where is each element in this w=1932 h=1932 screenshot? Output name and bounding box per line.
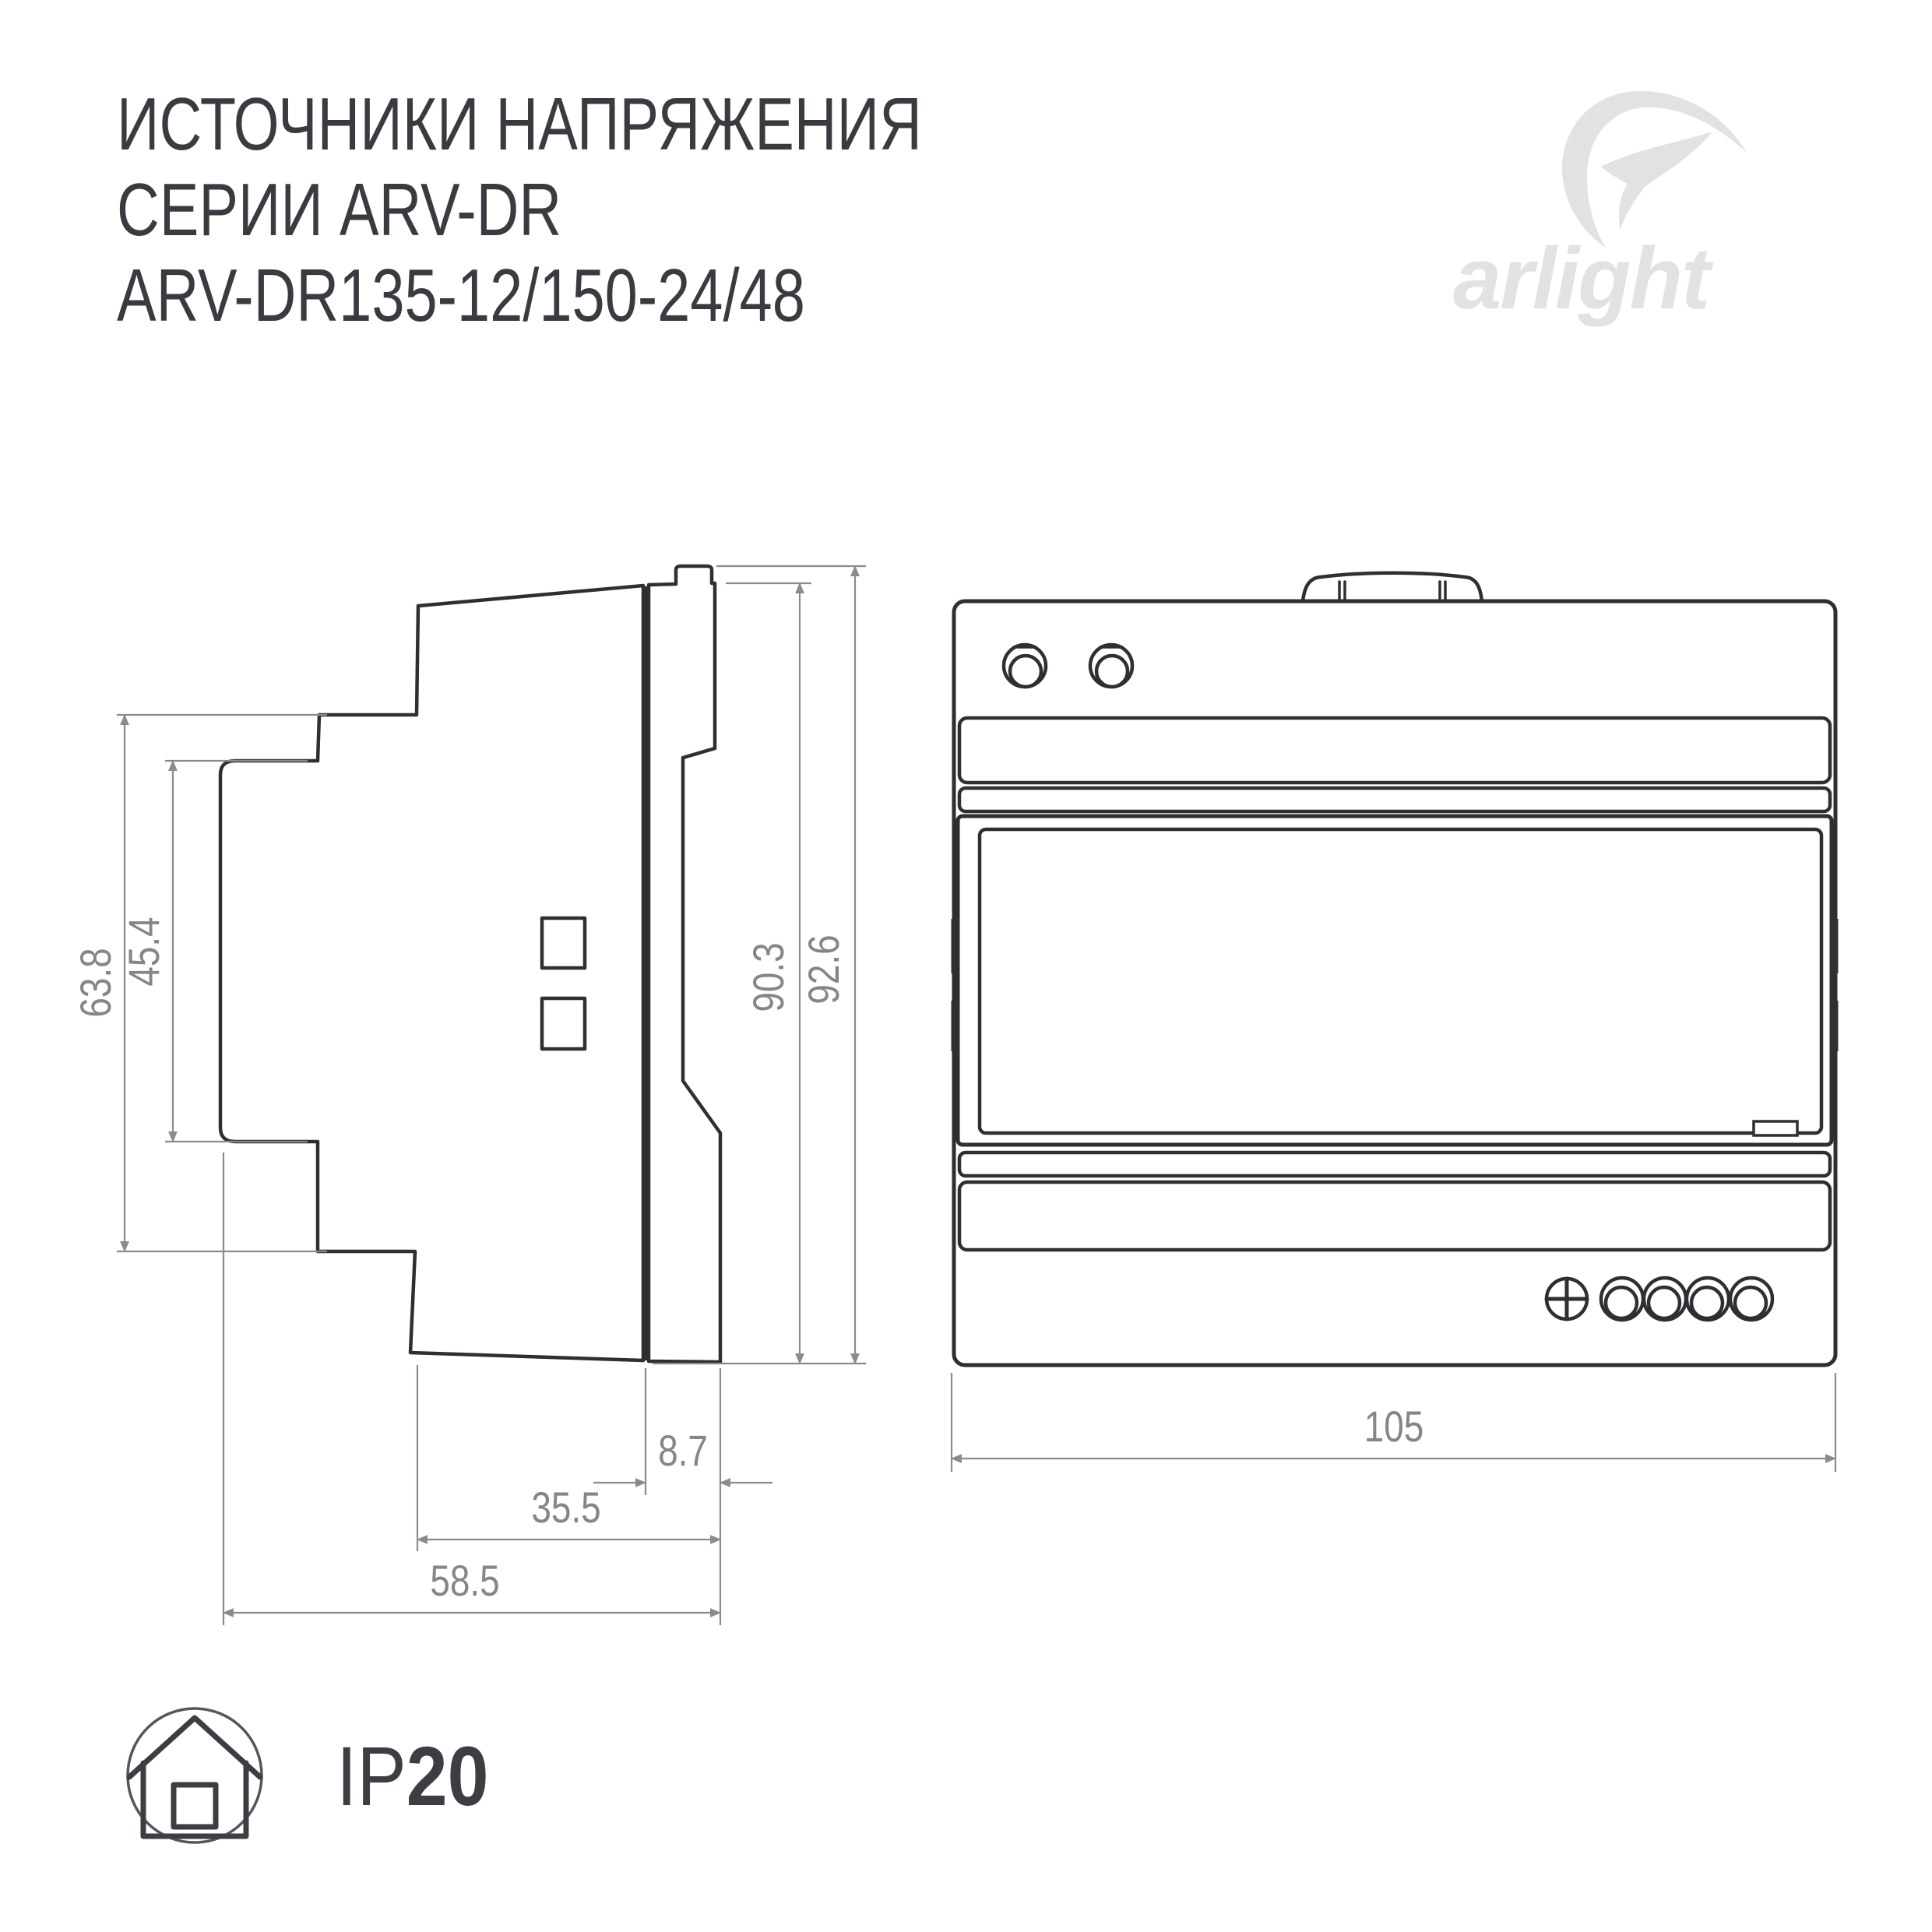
side-view-drawing: 63.8 45.4 90.3 92.6 8.7 [72, 566, 866, 1625]
page-title-line2: СЕРИИ ARV-DR [117, 169, 561, 252]
dim-body-height-value: 90.3 [744, 942, 793, 1012]
technical-drawing-canvas: ИСТОЧНИКИ НАПРЯЖЕНИЯ СЕРИИ ARV-DR ARV-DR… [0, 0, 1932, 1932]
front-lower-strip [959, 1153, 1830, 1176]
dim-rail-depth-value: 8.7 [658, 1427, 708, 1475]
arlight-swoosh-icon [1601, 132, 1712, 230]
front-panel-inner [980, 829, 1821, 1133]
ip-prefix: IP [336, 1729, 406, 1823]
page-title-line3: ARV-DR135-12/150-24/48 [117, 255, 805, 338]
badge-circle [128, 1709, 262, 1842]
front-view-drawing: 105 [952, 573, 1835, 1472]
dim-mid-depth-value: 35.5 [531, 1483, 600, 1532]
side-window-upper [542, 918, 585, 968]
front-upper-band [959, 718, 1830, 783]
front-knob-right [1090, 645, 1132, 687]
front-knob-left [1004, 645, 1046, 687]
title-block: ИСТОЧНИКИ НАПРЯЖЕНИЯ СЕРИИ ARV-DR ARV-DR… [117, 83, 922, 338]
ip-rating-label: IP20 [336, 1729, 489, 1823]
dim-inner-height-value: 45.4 [120, 917, 168, 986]
dim-outer-height-value: 63.8 [72, 948, 120, 1017]
dim-front-width: 105 [952, 1373, 1835, 1472]
side-window-lower [542, 998, 585, 1049]
dim-total-depth-value: 58.5 [430, 1557, 499, 1605]
house-icon [129, 1718, 260, 1836]
front-ground-screw [1547, 1279, 1587, 1319]
front-upper-strip [959, 788, 1830, 811]
front-lower-band [959, 1182, 1830, 1250]
front-panel-tag [1754, 1121, 1797, 1135]
side-body-outline [220, 586, 643, 1360]
ip-rating-badge: IP20 [128, 1709, 489, 1842]
page: ИСТОЧНИКИ НАПРЯЖЕНИЯ СЕРИИ ARV-DR ARV-DR… [0, 0, 1932, 1932]
brand-logo: arlight [1453, 91, 1747, 327]
ip-value: 20 [406, 1729, 489, 1823]
dim-total-height-value: 92.6 [800, 934, 848, 1004]
side-rail-section [649, 566, 720, 1362]
front-top-tab [1303, 573, 1482, 601]
page-title-line1: ИСТОЧНИКИ НАПРЯЖЕНИЯ [117, 83, 922, 167]
brand-wordmark: arlight [1453, 230, 1714, 327]
dim-rail-depth: 8.7 [593, 1368, 772, 1625]
dim-front-width-value: 105 [1364, 1402, 1424, 1451]
